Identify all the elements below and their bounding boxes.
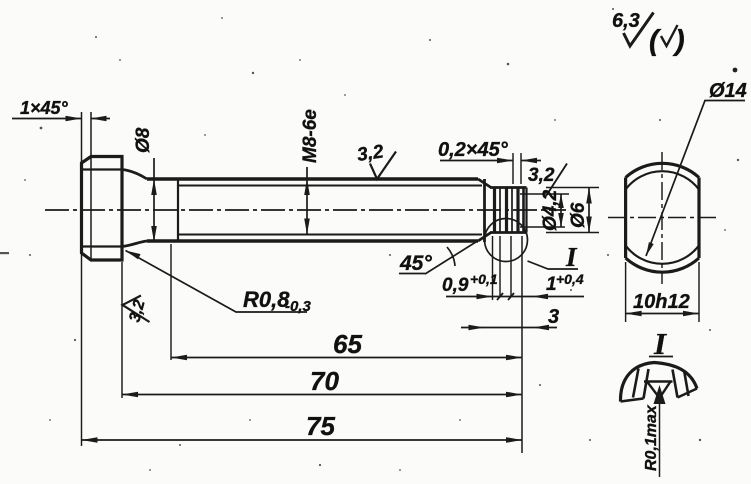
svg-text:Ø6: Ø6 (568, 202, 589, 228)
svg-text:Ø4,2: Ø4,2 (540, 189, 561, 231)
svg-text:M8-6e: M8-6e (300, 109, 321, 163)
svg-text:70: 70 (310, 366, 339, 396)
svg-text:I: I (565, 242, 578, 272)
svg-text:10h12: 10h12 (633, 291, 690, 313)
svg-text:1: 1 (546, 274, 557, 295)
svg-text:+0,1: +0,1 (470, 271, 498, 287)
svg-text:3,2: 3,2 (528, 165, 555, 186)
svg-text:0,9: 0,9 (442, 275, 469, 296)
svg-text:75: 75 (306, 411, 335, 441)
svg-text:3: 3 (548, 306, 559, 328)
svg-text:65: 65 (333, 329, 362, 359)
svg-text:0,2×45°: 0,2×45° (438, 139, 509, 161)
svg-text:Ø8: Ø8 (133, 127, 154, 153)
svg-text:3,2: 3,2 (356, 141, 386, 166)
svg-text:+0,4: +0,4 (556, 271, 584, 287)
svg-text:-0,3: -0,3 (285, 298, 312, 315)
svg-text:6,3: 6,3 (612, 10, 640, 32)
svg-text:R0,8: R0,8 (243, 287, 290, 312)
svg-text:1×45°: 1×45° (20, 98, 69, 118)
svg-text:Ø14: Ø14 (709, 80, 747, 102)
svg-text:R0,1max: R0,1max (643, 404, 660, 471)
